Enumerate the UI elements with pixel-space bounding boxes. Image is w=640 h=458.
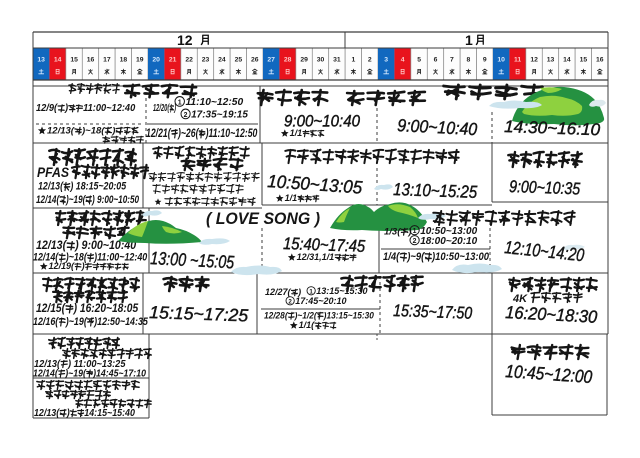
svg-text:29: 29 — [300, 57, 308, 64]
svg-text:)10:50~13:00: )10:50~13:00 — [431, 252, 489, 264]
svg-text:15: 15 — [580, 57, 588, 64]
svg-text:) 16:20~18:05: ) 16:20~18:05 — [73, 302, 139, 315]
svg-text:31: 31 — [333, 57, 341, 64]
svg-text:)13:15~15:30: )13:15~15:30 — [323, 310, 374, 321]
svg-text:): ) — [81, 261, 85, 271]
svg-text:): ) — [111, 125, 115, 136]
svg-text:21: 21 — [169, 57, 177, 64]
svg-text:16: 16 — [87, 57, 95, 64]
svg-text:)~26(: )~26( — [177, 128, 200, 140]
svg-text:14: 14 — [54, 57, 62, 64]
svg-text:2: 2 — [368, 57, 372, 64]
svg-text:26: 26 — [251, 57, 259, 64]
svg-text:2: 2 — [413, 238, 417, 245]
svg-text:12/28(: 12/28( — [264, 310, 289, 321]
svg-text:16: 16 — [596, 57, 604, 64]
svg-text:13: 13 — [37, 57, 45, 64]
svg-text:4: 4 — [401, 57, 405, 64]
svg-text:7: 7 — [450, 57, 454, 64]
svg-text:12/13(: 12/13( — [36, 240, 67, 252]
svg-text:18:00~20:10: 18:00~20:10 — [420, 236, 477, 247]
svg-text:12/21(: 12/21( — [146, 128, 172, 140]
svg-text:17:45~20:10: 17:45~20:10 — [295, 296, 346, 306]
svg-text:12: 12 — [177, 32, 193, 48]
svg-text:12/14(: 12/14( — [33, 367, 59, 379]
svg-text:)~19(: )~19( — [64, 367, 86, 379]
svg-text:11:00~12:40: 11:00~12:40 — [83, 103, 136, 114]
svg-text:17: 17 — [103, 57, 111, 64]
svg-text:12/16(: 12/16( — [33, 316, 60, 328]
svg-text:1: 1 — [413, 228, 417, 235]
svg-text:9:00~10:40: 9:00~10:40 — [397, 115, 478, 139]
svg-text:1: 1 — [352, 57, 356, 64]
svg-text:19: 19 — [136, 57, 144, 64]
svg-text:3: 3 — [384, 57, 388, 64]
svg-text:11: 11 — [514, 57, 521, 64]
svg-text:1/1: 1/1 — [290, 128, 303, 138]
svg-text:12/14(: 12/14( — [36, 194, 61, 206]
svg-text:1: 1 — [465, 32, 473, 48]
svg-text:10: 10 — [497, 57, 505, 64]
svg-text:2: 2 — [184, 112, 188, 119]
svg-text:9: 9 — [483, 57, 487, 64]
svg-text:12/13(: 12/13( — [38, 181, 65, 193]
svg-text:13: 13 — [547, 57, 555, 64]
svg-text:13:15~15:30: 13:15~15:30 — [316, 286, 367, 296]
svg-text:)14:45~17:10: )14:45~17:10 — [92, 367, 146, 379]
svg-text:6: 6 — [434, 57, 438, 64]
svg-text:) 18:15~20:05: ) 18:15~20:05 — [70, 181, 127, 193]
svg-text:12/20(: 12/20( — [153, 101, 170, 113]
svg-text:) 9:00~10:50: ) 9:00~10:50 — [91, 194, 139, 206]
svg-text:1: 1 — [309, 288, 313, 295]
svg-text:15:35~17:50: 15:35~17:50 — [393, 301, 473, 323]
svg-text:PFAS: PFAS — [37, 164, 70, 180]
svg-text:5: 5 — [417, 57, 421, 64]
svg-text:12/15(: 12/15( — [36, 302, 66, 315]
svg-text:)~1/2(: )~1/2( — [294, 310, 318, 321]
svg-text:27: 27 — [267, 57, 275, 64]
svg-text:30: 30 — [317, 57, 325, 64]
svg-text:14:15~15:40: 14:15~15:40 — [84, 407, 135, 419]
svg-text:1/1(: 1/1( — [299, 320, 316, 330]
svg-text:24: 24 — [218, 57, 226, 64]
svg-text:)11:00~12:40: )11:00~12:40 — [93, 252, 147, 264]
svg-text:12: 12 — [530, 57, 538, 64]
svg-text:14: 14 — [563, 57, 571, 64]
svg-text:12/19(: 12/19( — [49, 261, 76, 271]
svg-text:9:00~10:35: 9:00~10:35 — [509, 177, 581, 198]
svg-text:1: 1 — [178, 98, 182, 106]
svg-text:1/3(: 1/3( — [384, 226, 402, 237]
svg-text:2: 2 — [288, 298, 292, 305]
svg-text:1/4(: 1/4( — [383, 252, 401, 264]
svg-text:)11:10~12:50: )11:10~12:50 — [205, 128, 258, 140]
svg-text:)~9(: )~9( — [406, 252, 425, 264]
svg-text:15:15~17:25: 15:15~17:25 — [149, 302, 249, 325]
svg-text:14:30~16:10: 14:30~16:10 — [504, 117, 601, 139]
svg-text:15: 15 — [70, 57, 78, 64]
svg-text:18: 18 — [120, 57, 128, 64]
svg-text:( LOVE SONG ): ( LOVE SONG ) — [206, 210, 320, 228]
svg-text:1/1: 1/1 — [285, 193, 298, 203]
svg-text:22: 22 — [185, 57, 193, 64]
svg-text:8: 8 — [467, 57, 471, 64]
svg-text:12/13(: 12/13( — [47, 125, 76, 136]
svg-text:25: 25 — [235, 57, 243, 64]
svg-text:28: 28 — [284, 57, 292, 64]
svg-text:20: 20 — [152, 57, 160, 64]
svg-text:12/9(: 12/9( — [36, 103, 59, 114]
svg-text:13:10~15:25: 13:10~15:25 — [393, 179, 478, 202]
svg-text:)12:50~14:35: )12:50~14:35 — [93, 316, 148, 328]
svg-text:12/31,1/1: 12/31,1/1 — [297, 252, 335, 262]
svg-text:): ) — [66, 407, 70, 419]
svg-text:)~19(: )~19( — [65, 316, 88, 328]
svg-text:12/27(: 12/27( — [265, 287, 292, 297]
svg-text:): ) — [64, 103, 68, 114]
svg-text:11:10~12:50: 11:10~12:50 — [185, 97, 243, 108]
svg-text:23: 23 — [202, 57, 210, 64]
svg-text:17:35~19:15: 17:35~19:15 — [191, 109, 248, 120]
svg-text:)~18(: )~18( — [81, 125, 106, 136]
svg-text:)~19(: )~19( — [65, 194, 87, 206]
svg-text:12/13(: 12/13( — [34, 407, 61, 419]
